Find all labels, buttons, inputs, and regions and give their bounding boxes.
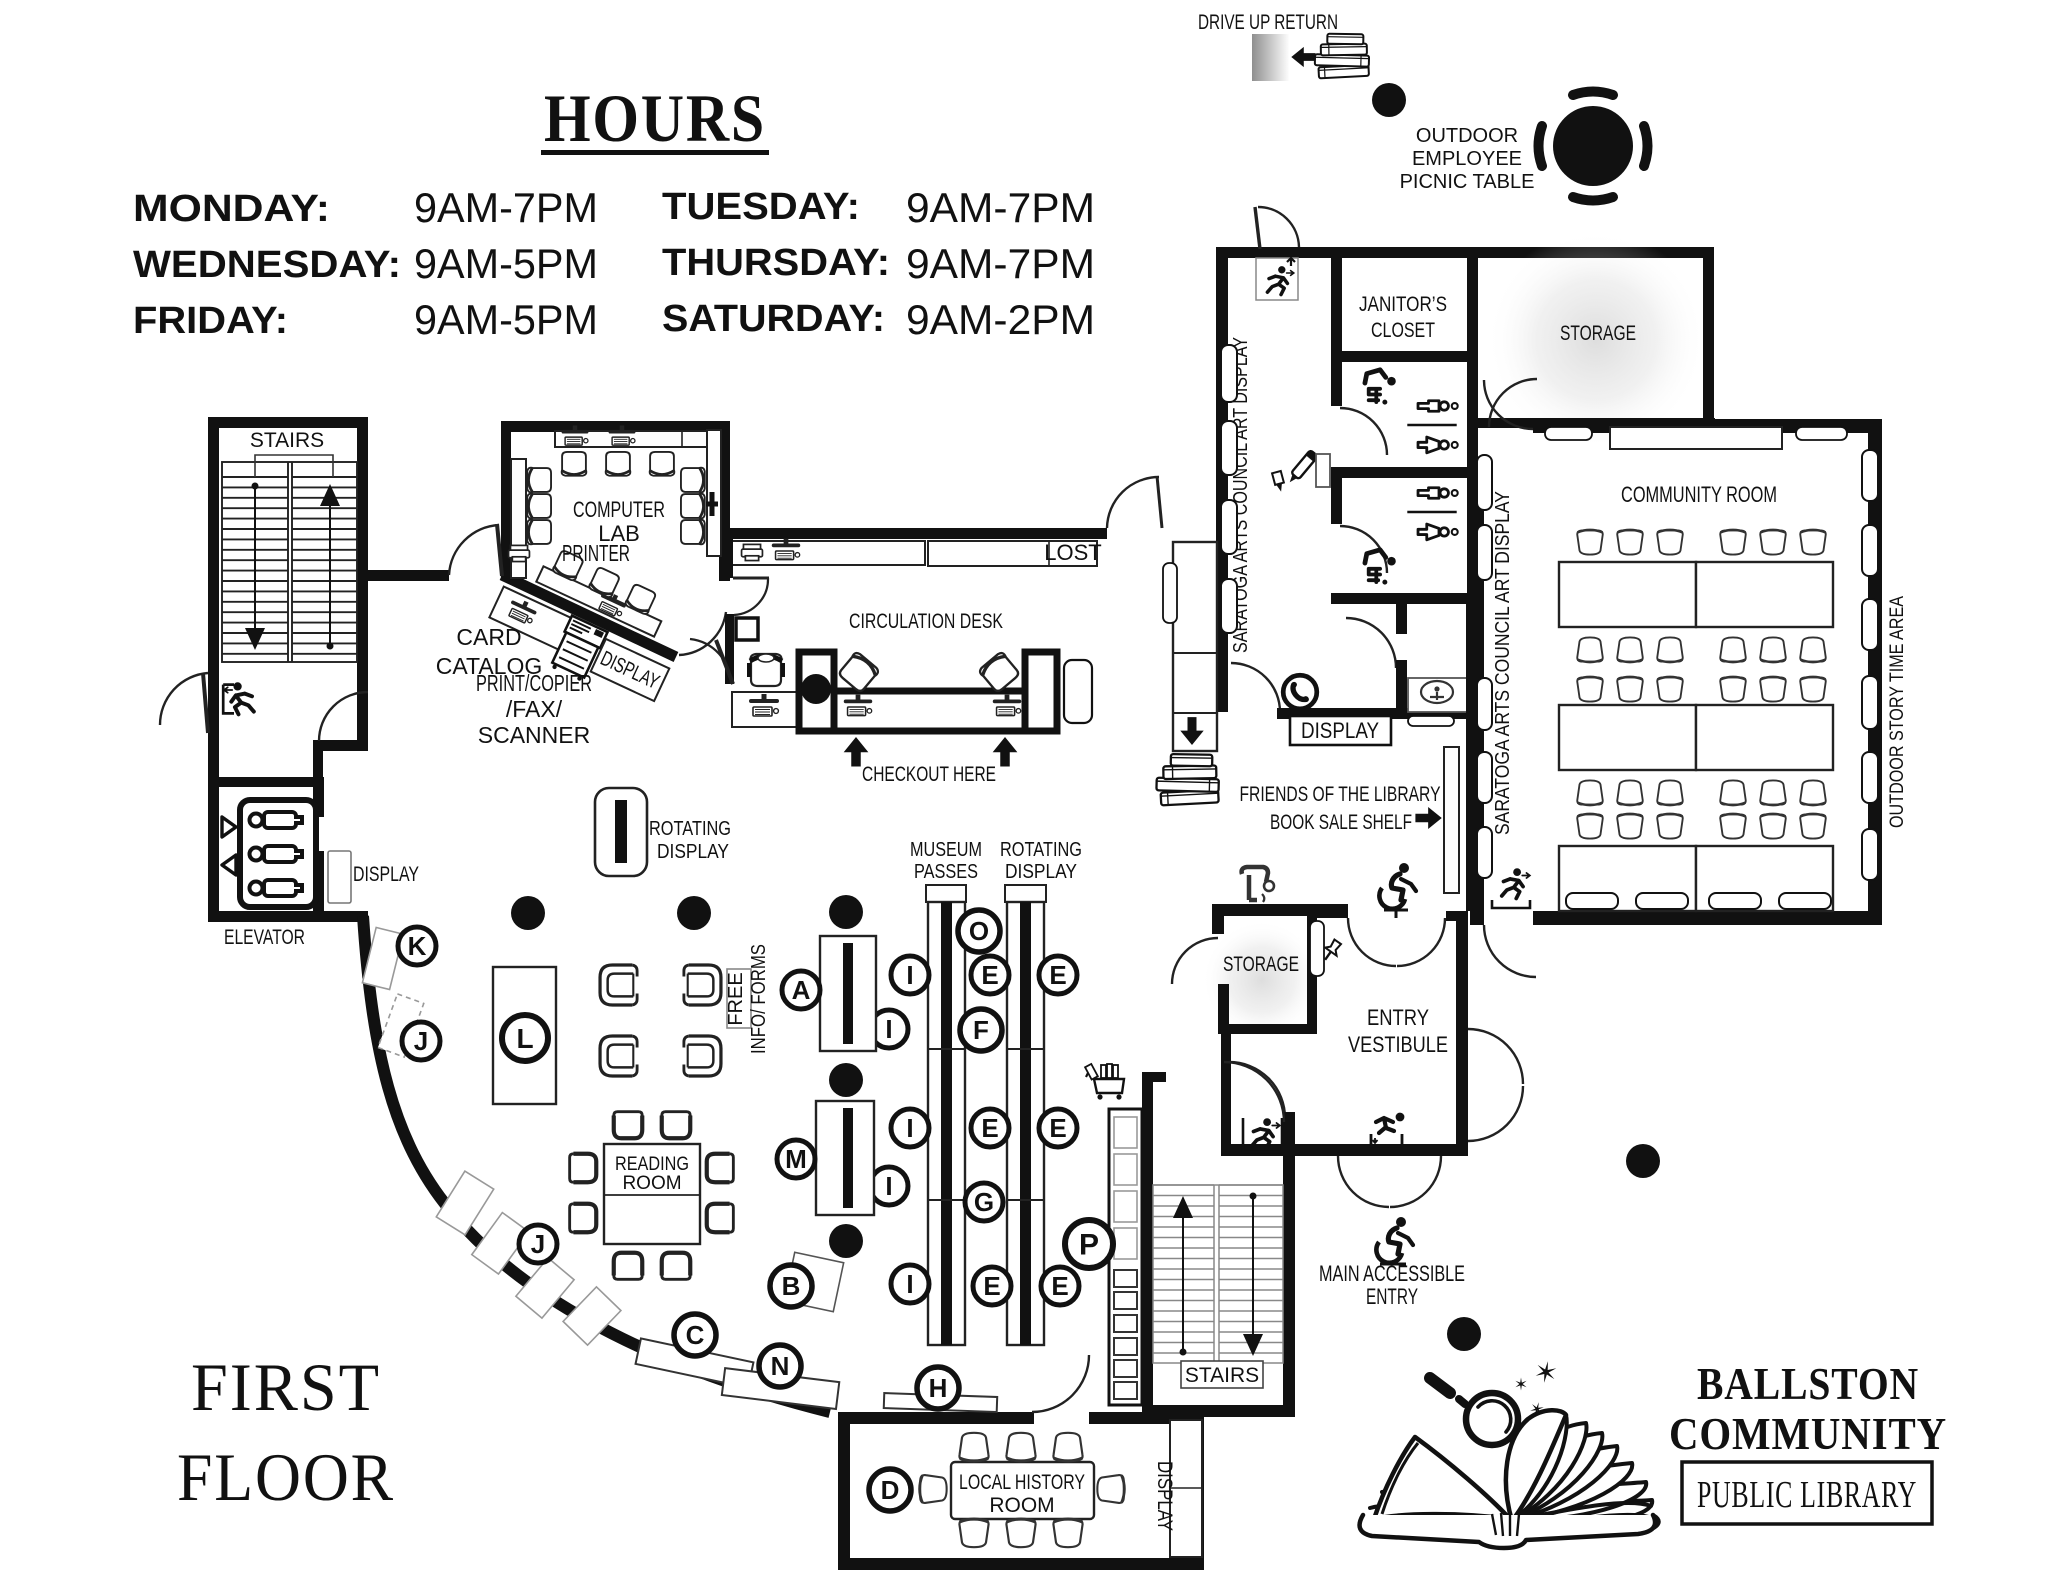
svg-text:FRIENDS OF THE LIBRARY: FRIENDS OF THE LIBRARY xyxy=(1240,783,1441,806)
svg-text:9AM-2PM: 9AM-2PM xyxy=(906,296,1095,343)
svg-text:PASSES: PASSES xyxy=(914,861,978,883)
svg-text:COMMUNITY ROOM: COMMUNITY ROOM xyxy=(1621,482,1777,507)
svg-text:FRIDAY:: FRIDAY: xyxy=(133,300,288,342)
svg-text:ROOM: ROOM xyxy=(622,1173,681,1194)
svg-text:B: B xyxy=(782,1271,801,1301)
svg-text:JANITOR’S: JANITOR’S xyxy=(1359,293,1447,316)
svg-text:FLOOR: FLOOR xyxy=(177,1439,395,1515)
svg-text:DRIVE UP RETURN: DRIVE UP RETURN xyxy=(1198,11,1338,34)
svg-text:I: I xyxy=(885,1014,892,1044)
svg-text:TUESDAY:: TUESDAY: xyxy=(662,186,860,228)
svg-text:DISPLAY: DISPLAY xyxy=(1005,861,1077,883)
svg-text:OUTDOOR: OUTDOOR xyxy=(1416,125,1518,147)
svg-text:9AM-5PM: 9AM-5PM xyxy=(414,240,598,287)
svg-text:PRINT/COPIER: PRINT/COPIER xyxy=(476,670,592,696)
svg-text:ROOM: ROOM xyxy=(989,1494,1054,1517)
svg-text:DISPLAY: DISPLAY xyxy=(1153,1461,1176,1531)
svg-text:A: A xyxy=(792,975,811,1005)
svg-text:PRINTER: PRINTER xyxy=(562,540,630,566)
svg-text:9AM-7PM: 9AM-7PM xyxy=(906,184,1095,231)
svg-text:CLOSET: CLOSET xyxy=(1371,319,1435,342)
svg-text:BOOK SALE SHELF: BOOK SALE SHELF xyxy=(1270,811,1412,834)
svg-text:COMMUNITY: COMMUNITY xyxy=(1669,1408,1947,1459)
svg-text:I: I xyxy=(906,960,913,990)
svg-text:SATURDAY:: SATURDAY: xyxy=(662,298,885,340)
svg-text:F: F xyxy=(973,1015,989,1045)
svg-text:MAIN ACCESSIBLE: MAIN ACCESSIBLE xyxy=(1319,1261,1465,1286)
svg-text:LOCAL HISTORY: LOCAL HISTORY xyxy=(959,1471,1085,1494)
svg-text:DISPLAY: DISPLAY xyxy=(353,863,419,886)
svg-text:I: I xyxy=(885,1171,892,1201)
svg-text:J: J xyxy=(531,1229,545,1259)
svg-text:VESTIBULE: VESTIBULE xyxy=(1348,1032,1448,1057)
svg-text:THURSDAY:: THURSDAY: xyxy=(662,242,890,284)
svg-text:EMPLOYEE: EMPLOYEE xyxy=(1412,148,1522,170)
svg-text:P: P xyxy=(1079,1229,1099,1262)
svg-text:M: M xyxy=(785,1144,807,1174)
svg-text:O: O xyxy=(969,916,989,946)
svg-text:ENTRY: ENTRY xyxy=(1366,1284,1418,1309)
svg-text:MUSEUM: MUSEUM xyxy=(910,839,982,861)
svg-text:E: E xyxy=(1051,1271,1068,1301)
svg-text:DISPLAY: DISPLAY xyxy=(657,841,729,863)
svg-text:J: J xyxy=(414,1026,428,1056)
svg-text:COMPUTER: COMPUTER xyxy=(573,497,665,522)
svg-text:L: L xyxy=(516,1023,533,1054)
svg-text:CARD: CARD xyxy=(456,624,521,650)
svg-text:PICNIC TABLE: PICNIC TABLE xyxy=(1400,171,1535,193)
svg-text:E: E xyxy=(981,1113,998,1143)
svg-text:SCANNER: SCANNER xyxy=(478,722,590,748)
svg-text:BALLSTON: BALLSTON xyxy=(1697,1358,1919,1409)
svg-text:9AM-7PM: 9AM-7PM xyxy=(414,184,598,231)
svg-text:SARATOGA ARTS COUNCIL ART DISP: SARATOGA ARTS COUNCIL ART DISPLAY xyxy=(1492,491,1514,835)
svg-text:MONDAY:: MONDAY: xyxy=(133,188,330,230)
svg-text:LOST: LOST xyxy=(1044,540,1101,565)
svg-text:WEDNESDAY:: WEDNESDAY: xyxy=(133,244,401,286)
svg-text:I: I xyxy=(906,1269,913,1299)
svg-text:ELEVATOR: ELEVATOR xyxy=(224,926,305,949)
svg-text:INFO/ FORMS: INFO/ FORMS xyxy=(748,944,770,1054)
svg-text:CHECKOUT HERE: CHECKOUT HERE xyxy=(862,763,996,786)
svg-text:E: E xyxy=(981,960,998,990)
svg-text:D: D xyxy=(881,1475,900,1505)
svg-text:/FAX/: /FAX/ xyxy=(506,696,563,722)
svg-text:E: E xyxy=(1049,1113,1066,1143)
svg-text:E: E xyxy=(983,1271,1000,1301)
svg-text:CIRCULATION DESK: CIRCULATION DESK xyxy=(849,610,1003,633)
svg-text:K: K xyxy=(408,931,427,961)
svg-text:9AM-7PM: 9AM-7PM xyxy=(906,240,1095,287)
svg-text:I: I xyxy=(906,1113,913,1143)
svg-text:ROTATING: ROTATING xyxy=(649,818,731,840)
svg-text:OUTDOOR STORY TIME AREA: OUTDOOR STORY TIME AREA xyxy=(1887,596,1908,828)
svg-text:ROTATING: ROTATING xyxy=(1000,839,1082,861)
svg-text:N: N xyxy=(771,1351,790,1381)
svg-text:STAIRS: STAIRS xyxy=(1185,1364,1259,1387)
svg-text:DISPLAY: DISPLAY xyxy=(1301,718,1379,743)
svg-text:G: G xyxy=(974,1187,994,1217)
svg-text:STORAGE: STORAGE xyxy=(1223,953,1299,976)
svg-text:H: H xyxy=(929,1373,948,1403)
svg-text:FREE: FREE xyxy=(725,972,747,1025)
svg-text:STORAGE: STORAGE xyxy=(1560,322,1636,345)
svg-text:HOURS: HOURS xyxy=(544,80,766,156)
svg-text:9AM-5PM: 9AM-5PM xyxy=(414,296,598,343)
svg-text:E: E xyxy=(1049,960,1066,990)
svg-text:FIRST: FIRST xyxy=(191,1349,381,1425)
svg-text:STAIRS: STAIRS xyxy=(250,429,324,452)
svg-text:PUBLIC LIBRARY: PUBLIC LIBRARY xyxy=(1697,1474,1917,1516)
svg-text:READING: READING xyxy=(615,1154,689,1175)
svg-text:ENTRY: ENTRY xyxy=(1367,1005,1429,1030)
svg-text:C: C xyxy=(686,1320,705,1350)
